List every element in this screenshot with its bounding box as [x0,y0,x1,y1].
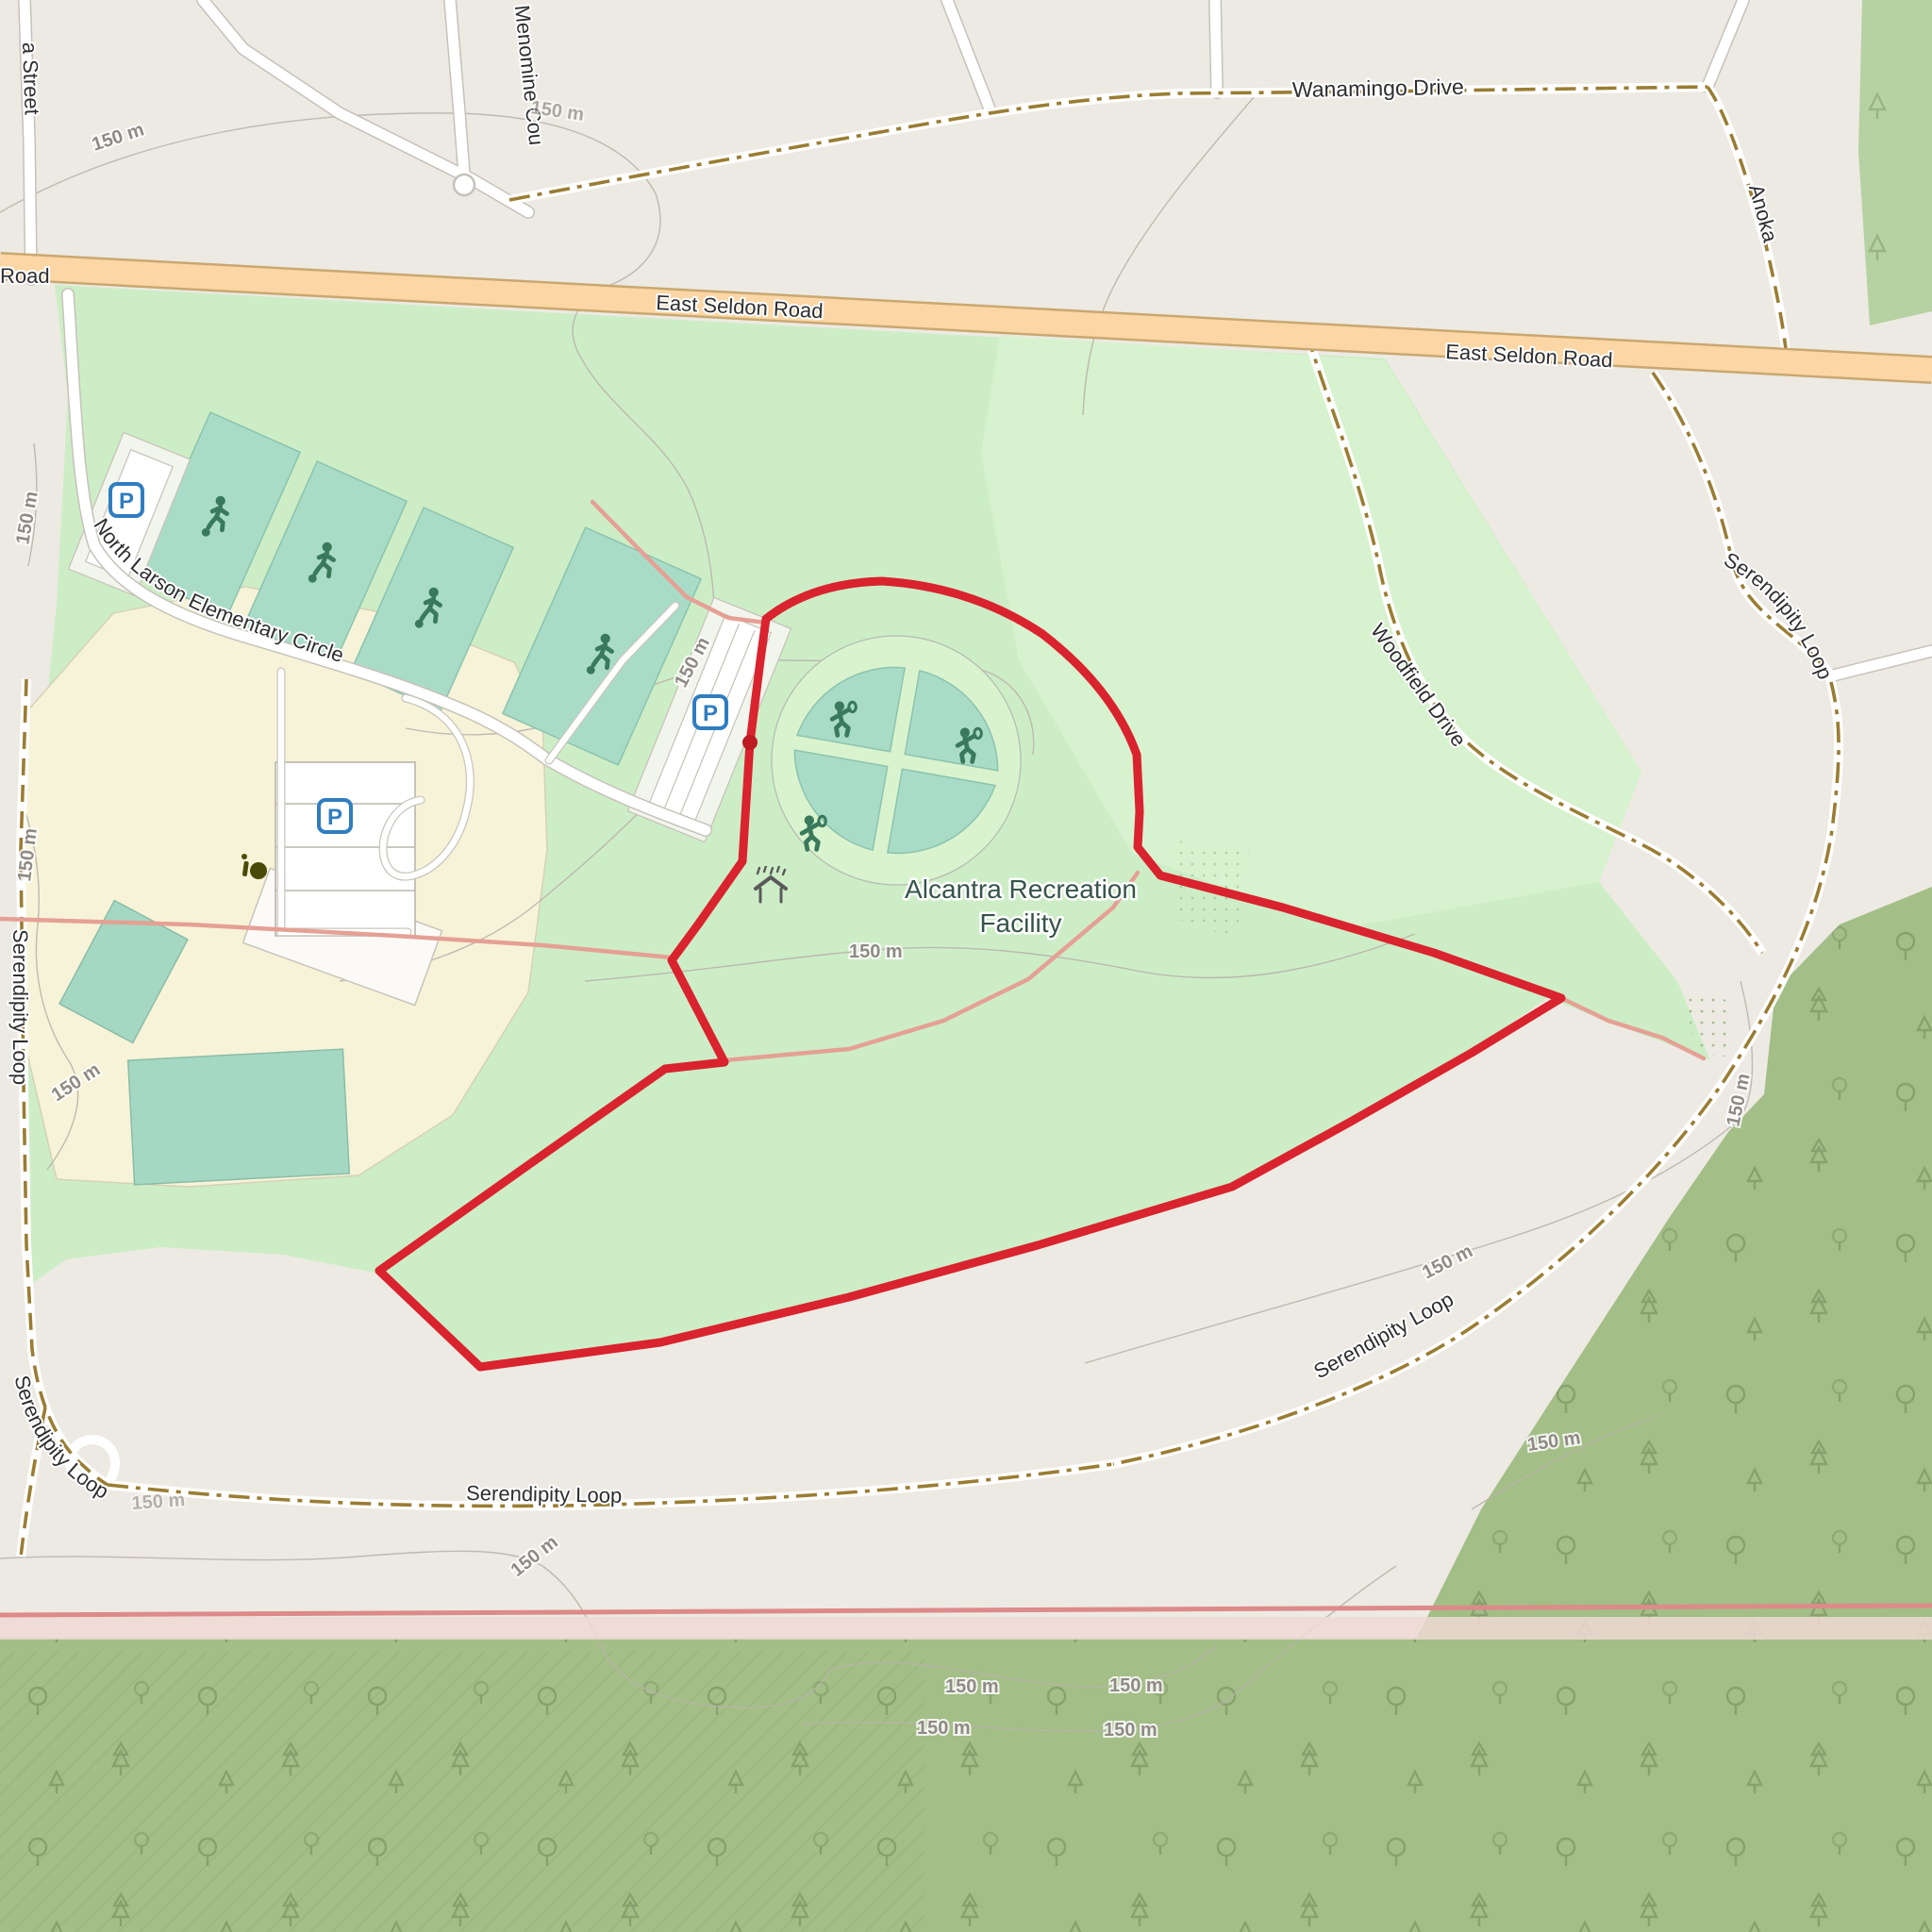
facility-name-line1: Alcantra Recreation [905,874,1137,904]
parking-icon: P [694,696,726,728]
scrub-patch [1687,992,1728,1057]
parking-lot-school [275,762,415,936]
forest-top-right [1858,0,1932,325]
road-label-a-street: a Street [18,42,44,115]
contour-label-150m: 150 m [917,1718,971,1739]
road-label-serendipity-left: Serendipity Loop [8,929,32,1085]
parking-icon: P [110,484,142,516]
parking-letter: P [703,701,718,726]
route-start-dot [742,735,758,750]
contour-label-150m: 150 m [945,1676,999,1697]
parking-letter: P [327,805,342,830]
contour-label-150m: 150 m [849,941,903,962]
parking-icon: P [319,800,351,832]
map-canvas[interactable]: P P P East Seldon Road East Seldon Road … [0,0,1932,1932]
road-label-road-partial: Road [0,264,50,288]
contour-label-150m: 150 m [131,1490,186,1514]
map-svg: P P P East Seldon Road East Seldon Road … [0,0,1932,1932]
contour-label-150m: 150 m [1109,1675,1163,1696]
parking-letter: P [119,489,134,514]
contour-label-150m: 150 m [1104,1720,1158,1740]
facility-name-line2: Facility [979,908,1061,938]
road-label-serendipity-bottom: Serendipity Loop [466,1481,623,1507]
road-label-wanamingo: Wanamingo Drive [1292,75,1464,102]
